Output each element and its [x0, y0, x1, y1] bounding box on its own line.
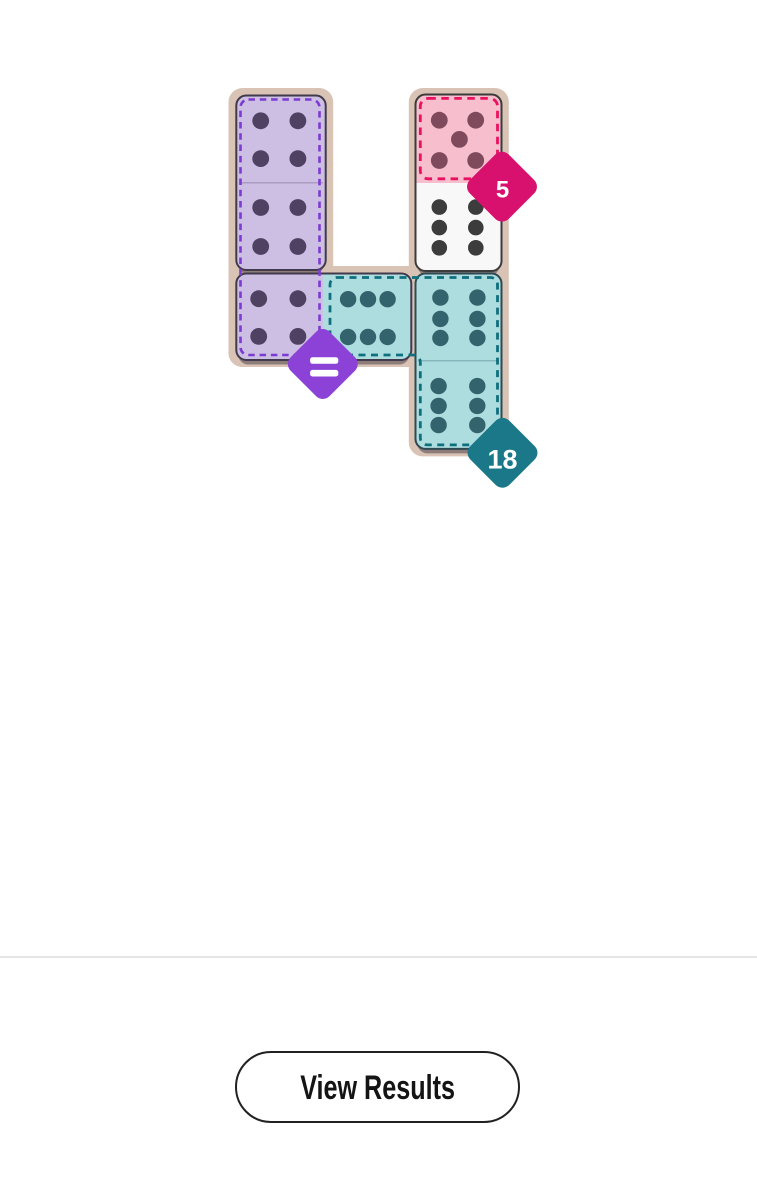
svg-text:18: 18: [487, 444, 517, 474]
svg-text:5: 5: [496, 177, 509, 204]
